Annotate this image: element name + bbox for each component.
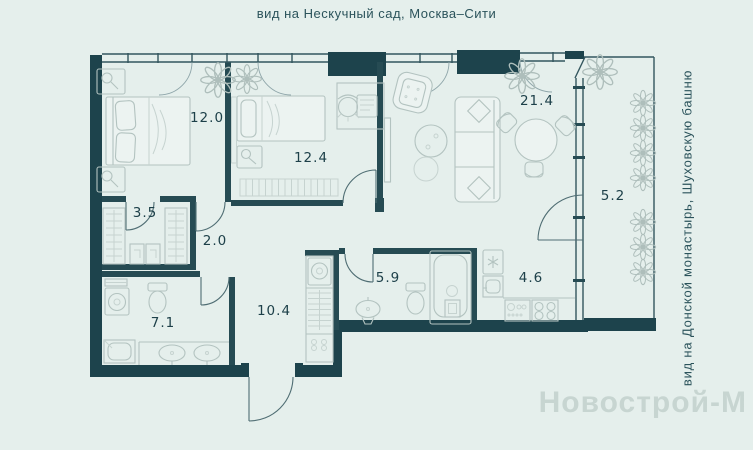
plant-icon (630, 90, 655, 115)
toilet-icon (406, 283, 425, 314)
kitchen-counter (503, 298, 575, 321)
plant-icon (505, 59, 540, 94)
shower-icon (104, 340, 135, 363)
stove-icon (532, 300, 558, 321)
single-bed-icon (237, 96, 325, 141)
coffee-table-icon (414, 125, 447, 181)
sofa-icon (455, 97, 500, 202)
room-label-living-room: 21.4 (520, 93, 554, 109)
bedroom-1-door-arc (196, 202, 225, 231)
radiator-icon (240, 179, 338, 196)
developer-watermark: Новострой-М (539, 386, 747, 420)
view-caption-right: вид на Донской монастырь, Шуховскую башн… (680, 70, 695, 386)
view-caption-top: вид на Нескучный сад, Москва–Сити (0, 6, 753, 21)
toilet-icon (148, 283, 167, 313)
floorplan-svg: 12.0 12.4 21.4 5.2 3.5 2.0 7.1 10.4 5.9 … (0, 0, 753, 450)
fridge-icon (483, 250, 503, 274)
kitchen-sink-icon (483, 276, 503, 297)
room-label-kitchen: 4.6 (519, 270, 543, 286)
plant-icon (630, 140, 655, 165)
plant-icon (630, 115, 655, 140)
dining-table-icon (495, 111, 577, 177)
plant-icon (630, 209, 655, 234)
floorplan-page: вид на Нескучный сад, Москва–Сити Новост… (0, 0, 753, 450)
entrance-door-arc (249, 377, 293, 421)
room-label-wardrobe: 3.5 (133, 205, 157, 221)
bathtub-icon (430, 251, 471, 324)
plant-icon (233, 65, 262, 94)
plant-icon (583, 55, 618, 90)
room-label-corridor: 10.4 (257, 303, 291, 319)
room-label-bedroom-2: 12.4 (294, 150, 328, 166)
room-label-bedroom-1: 12.0 (190, 110, 224, 126)
desk-chair-icon (337, 95, 359, 122)
vanity-double-sink-icon (139, 342, 229, 365)
room-label-balcony: 5.2 (601, 188, 625, 204)
hall-wardrobe-column (306, 256, 333, 362)
washing-machine-icon (105, 288, 129, 315)
nightstand-icon (237, 146, 262, 168)
room-label-hall: 2.0 (203, 233, 227, 249)
sink-icon (356, 297, 380, 324)
room-label-bathroom-2: 5.9 (376, 270, 400, 286)
tv-icon (385, 118, 391, 182)
wardrobe-panel (232, 97, 237, 163)
bedroom-2-door-arc (343, 170, 376, 203)
plant-icon (630, 165, 655, 190)
double-bed-icon (106, 97, 190, 165)
armchair-icon (391, 70, 434, 114)
bathroom-2-door-arc (345, 254, 373, 282)
bathroom-1-door-arc (201, 277, 229, 305)
plant-icon (630, 259, 655, 284)
desk-icon (337, 83, 384, 129)
shelf-icon (105, 279, 127, 286)
room-label-bathroom-1: 7.1 (151, 315, 175, 331)
plant-icon (630, 234, 655, 259)
